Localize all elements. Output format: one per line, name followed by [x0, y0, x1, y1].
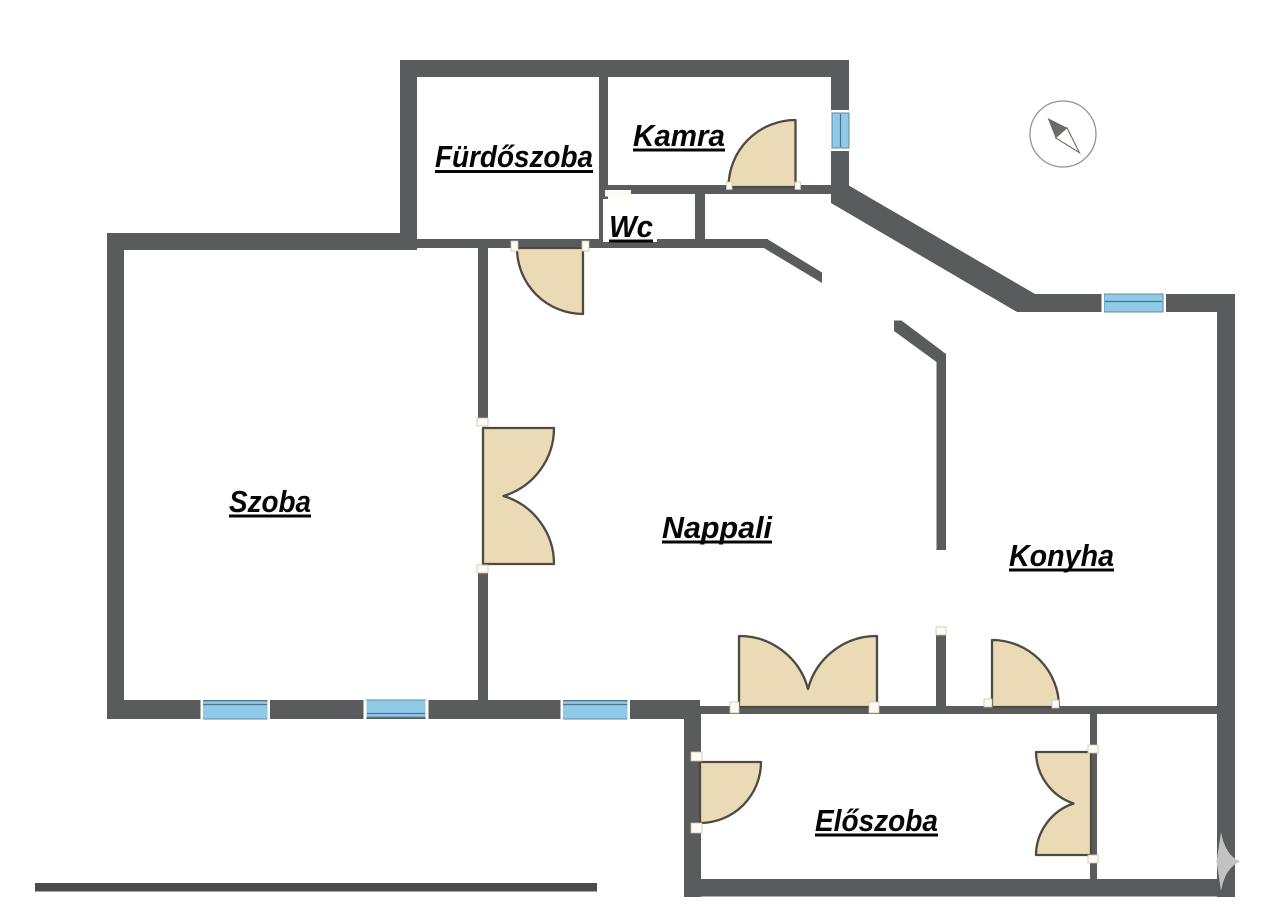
- svg-text:Kamra: Kamra: [633, 118, 725, 153]
- svg-text:Szoba: Szoba: [229, 484, 311, 519]
- svg-text:Fürdőszoba: Fürdőszoba: [435, 139, 593, 174]
- svg-text:Wc: Wc: [609, 209, 653, 244]
- svg-text:Konyha: Konyha: [1009, 538, 1114, 573]
- svg-text:Előszoba: Előszoba: [815, 803, 938, 838]
- svg-text:Nappali: Nappali: [662, 510, 773, 545]
